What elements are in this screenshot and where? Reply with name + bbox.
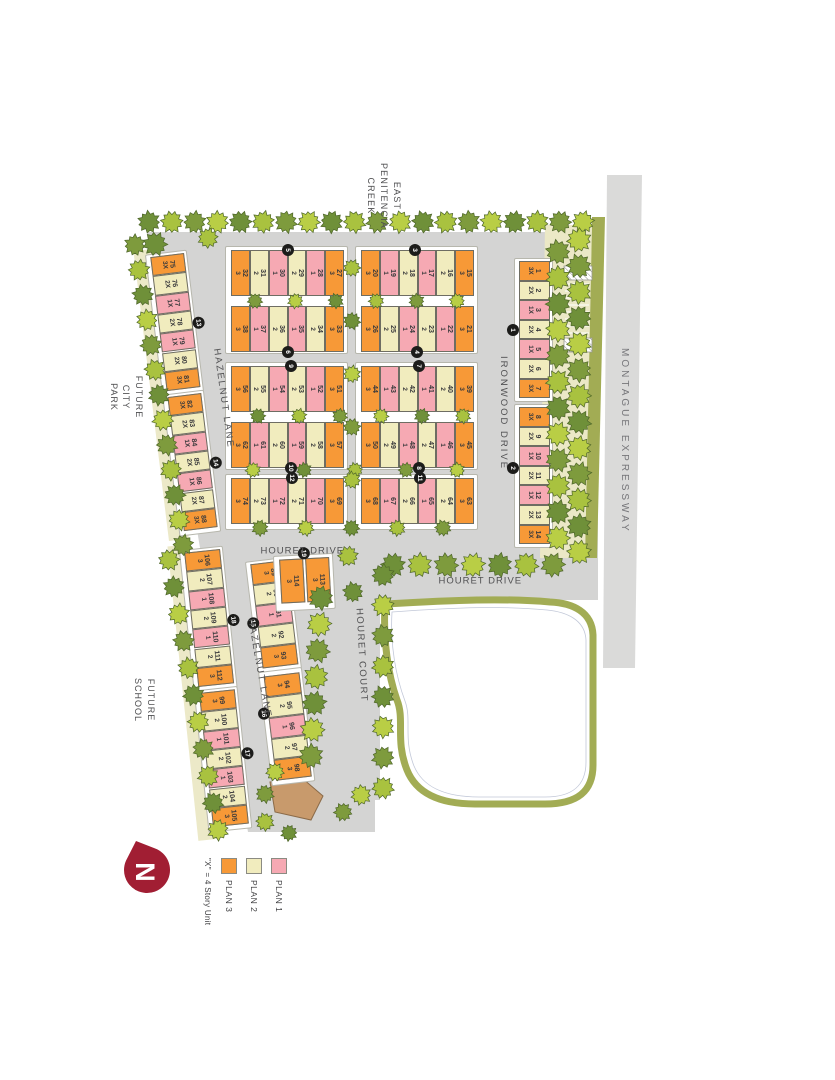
unit-lot: 143X bbox=[519, 525, 550, 545]
unit-lot: 83X bbox=[519, 407, 550, 427]
legend-label-plan-2: PLAN 2 bbox=[249, 880, 259, 912]
unit-number: 109 bbox=[209, 611, 217, 623]
unit-number: 100 bbox=[219, 713, 227, 725]
unit-lot: 743 bbox=[231, 478, 250, 524]
unit-lot: 693 bbox=[325, 478, 344, 524]
unit-number: 42 bbox=[408, 385, 415, 393]
unit-lot: 393 bbox=[455, 366, 474, 412]
unit-plan: 2 bbox=[290, 387, 297, 391]
unit-lot: 521 bbox=[306, 366, 325, 412]
unit-plan: 3 bbox=[234, 387, 241, 391]
unit-lot: 431 bbox=[380, 366, 399, 412]
unit-lot: 532 bbox=[288, 366, 307, 412]
unit-number: 47 bbox=[427, 441, 434, 449]
school-label-line: SCHOOL bbox=[132, 658, 145, 742]
unit-plan: 2 bbox=[382, 327, 389, 331]
unit-number: 18 bbox=[408, 269, 415, 277]
unit-plan: 2X bbox=[173, 356, 181, 365]
unit-lot: 642 bbox=[436, 478, 455, 524]
unit-plan: 3 bbox=[234, 327, 241, 331]
unit-number: 20 bbox=[371, 269, 378, 277]
unit-plan: 1 bbox=[252, 327, 259, 331]
unit-number: 33 bbox=[335, 325, 342, 333]
unit-lot: 22X bbox=[519, 281, 550, 301]
unit-plan: 3 bbox=[208, 674, 215, 678]
unit-plan: 1X bbox=[166, 299, 174, 308]
unit-plan: 3 bbox=[223, 814, 230, 818]
unit-number: 21 bbox=[465, 325, 472, 333]
unit-lot: 721 bbox=[269, 478, 288, 524]
unit-number: 43 bbox=[389, 385, 396, 393]
unit-plan: 2X bbox=[168, 318, 176, 327]
creek-label-line: EAST bbox=[390, 136, 403, 256]
legend-label-plan-1: PLAN 1 bbox=[274, 880, 284, 912]
unit-number: 93 bbox=[279, 651, 287, 660]
unit-plan: 3 bbox=[328, 499, 335, 503]
unit-plan: 2 bbox=[382, 443, 389, 447]
unit-lot: 481 bbox=[399, 422, 418, 468]
unit-number: 94 bbox=[282, 680, 290, 689]
unit-plan: 2X bbox=[528, 432, 535, 440]
unit-plan: 1 bbox=[420, 499, 427, 503]
unit-plan: 3 bbox=[364, 327, 371, 331]
unit-number: 103 bbox=[225, 771, 233, 783]
unit-lot: 292 bbox=[288, 250, 307, 296]
unit-number: 55 bbox=[259, 385, 266, 393]
unit-plan: 1 bbox=[290, 327, 297, 331]
unit-lot: 513 bbox=[325, 366, 344, 412]
legend-label-plan-3: PLAN 3 bbox=[224, 880, 234, 912]
unit-number: 78 bbox=[175, 317, 183, 326]
unit-number: 54 bbox=[278, 385, 285, 393]
trash-enclosure bbox=[564, 266, 592, 280]
unit-lot: 443 bbox=[361, 366, 380, 412]
unit-plan: 1 bbox=[219, 776, 226, 780]
building-badge: 1 bbox=[507, 324, 519, 336]
legend-row-plan-2: PLAN 2 bbox=[246, 858, 262, 925]
unit-plan: 3X bbox=[178, 401, 186, 410]
unit-lot: 13X bbox=[519, 261, 550, 281]
unit-lot: 422 bbox=[399, 366, 418, 412]
unit-lot: 312 bbox=[250, 250, 269, 296]
unit-plan: 2X bbox=[190, 496, 198, 505]
unit-number: 97 bbox=[290, 743, 298, 752]
unit-strip: 1133114319 bbox=[278, 556, 332, 607]
unit-lot: 252 bbox=[380, 306, 399, 352]
unit-lot: 281 bbox=[306, 250, 325, 296]
unit-plan: 2 bbox=[206, 655, 213, 659]
unit-plan: 1 bbox=[439, 443, 446, 447]
unit-plan: 2 bbox=[221, 795, 228, 799]
unit-number: 80 bbox=[180, 356, 188, 365]
unit-number: 9 bbox=[535, 434, 542, 438]
unit-number: 32 bbox=[241, 269, 248, 277]
unit-plan: 2X bbox=[185, 458, 193, 467]
unit-plan: 2 bbox=[202, 616, 209, 620]
unit-plan: 2 bbox=[401, 387, 408, 391]
unit-plan: 2 bbox=[290, 499, 297, 503]
unit-plan: 1X bbox=[528, 306, 535, 314]
unit-plan: 3 bbox=[328, 387, 335, 391]
unit-number: 84 bbox=[190, 438, 198, 447]
unit-lot: 582 bbox=[306, 422, 325, 468]
unit-number: 99 bbox=[217, 696, 225, 704]
unit-number: 108 bbox=[207, 592, 215, 604]
unit-number: 14 bbox=[535, 530, 542, 538]
unit-number: 8 bbox=[535, 415, 542, 419]
unit-number: 50 bbox=[371, 441, 378, 449]
unit-lot: 633 bbox=[455, 478, 474, 524]
legend-swatch-plan-1 bbox=[271, 858, 287, 874]
unit-plan: 1 bbox=[271, 271, 278, 275]
unit-number: 68 bbox=[371, 497, 378, 505]
unit-number: 75 bbox=[168, 260, 176, 269]
unit-number: 46 bbox=[446, 441, 453, 449]
unit-plan: 2 bbox=[198, 578, 205, 582]
building-badge: 11 bbox=[414, 472, 426, 484]
unit-lot: 1053 bbox=[211, 804, 249, 827]
unit-lot: 453 bbox=[455, 422, 474, 468]
unit-number: 38 bbox=[241, 325, 248, 333]
unit-number: 73 bbox=[259, 497, 266, 505]
north-arrow: N bbox=[97, 818, 192, 928]
unit-lot: 461 bbox=[436, 422, 455, 468]
unit-number: 15 bbox=[465, 269, 472, 277]
unit-number: 37 bbox=[259, 325, 266, 333]
unit-plan: 2 bbox=[252, 499, 259, 503]
legend-swatch-plan-3 bbox=[221, 858, 237, 874]
unit-lot: 732 bbox=[250, 478, 269, 524]
unit-plan: 2X bbox=[180, 420, 188, 429]
unit-plan: 2 bbox=[278, 704, 285, 708]
unit-number: 22 bbox=[446, 325, 453, 333]
unit-plan: 1X bbox=[170, 337, 178, 346]
unit-number: 40 bbox=[446, 385, 453, 393]
unit-lot: 983 bbox=[274, 756, 312, 781]
unit-number: 106 bbox=[202, 554, 210, 566]
unit-plan: 1 bbox=[267, 612, 274, 616]
unit-plan: 1 bbox=[204, 635, 211, 639]
street-label-ironwood-drive: IRONWOOD DRIVE bbox=[498, 356, 509, 470]
unit-number: 102 bbox=[223, 752, 231, 764]
unit-plan: 2 bbox=[420, 443, 427, 447]
unit-lot: 112X bbox=[519, 466, 550, 486]
unit-number: 79 bbox=[177, 337, 185, 346]
unit-number: 74 bbox=[241, 497, 248, 505]
unit-plan: 3 bbox=[364, 271, 371, 275]
unit-plan: 1 bbox=[309, 387, 316, 391]
unit-number: 86 bbox=[194, 476, 202, 485]
unit-number: 6 bbox=[535, 367, 542, 371]
unit-number: 26 bbox=[371, 325, 378, 333]
unit-plan: 1 bbox=[252, 443, 259, 447]
unit-number: 56 bbox=[241, 385, 248, 393]
unit-number: 27 bbox=[335, 269, 342, 277]
unit-number: 72 bbox=[278, 497, 285, 505]
unit-number: 10 bbox=[535, 452, 542, 460]
unit-plan: 1X bbox=[528, 452, 535, 460]
unit-lot: 552 bbox=[250, 366, 269, 412]
unit-plan: 3 bbox=[196, 559, 203, 563]
unit-number: 28 bbox=[316, 269, 323, 277]
building-badge: 7 bbox=[413, 360, 425, 372]
unit-number: 44 bbox=[371, 385, 378, 393]
unit-plan: 3 bbox=[328, 327, 335, 331]
unit-plan: 2 bbox=[265, 592, 272, 596]
north-arrow-letter: N bbox=[130, 862, 160, 882]
unit-plan: 2 bbox=[213, 718, 220, 722]
unit-number: 30 bbox=[278, 269, 285, 277]
unit-number: 87 bbox=[197, 496, 205, 505]
unit-number: 114 bbox=[292, 575, 300, 587]
building-badge: 6 bbox=[282, 346, 294, 358]
unit-number: 34 bbox=[316, 325, 323, 333]
unit-lot: 813X bbox=[164, 368, 200, 391]
unit-number: 57 bbox=[335, 441, 342, 449]
unit-number: 61 bbox=[259, 441, 266, 449]
unit-lot: 273 bbox=[325, 250, 344, 296]
unit-plan: 3 bbox=[364, 387, 371, 391]
unit-lot: 933 bbox=[260, 643, 298, 668]
unit-plan: 3 bbox=[328, 271, 335, 275]
unit-number: 2 bbox=[535, 288, 542, 292]
building-badge: 3 bbox=[409, 244, 421, 256]
unit-plan: 1X bbox=[187, 477, 195, 486]
unit-lot: 712 bbox=[288, 478, 307, 524]
unit-number: 23 bbox=[427, 325, 434, 333]
unit-number: 65 bbox=[427, 497, 434, 505]
unit-plan: 3 bbox=[272, 654, 279, 658]
park-label-line: FUTURE bbox=[133, 352, 146, 442]
unit-plan: 3 bbox=[276, 683, 283, 687]
unit-lot: 883X bbox=[182, 508, 218, 531]
unit-plan: 3 bbox=[328, 443, 335, 447]
unit-plan: 3X bbox=[528, 413, 535, 421]
unit-plan: 3 bbox=[311, 578, 318, 582]
houret-court-landscape-island bbox=[385, 600, 593, 804]
unit-plan: 3 bbox=[364, 499, 371, 503]
unit-plan: 3 bbox=[458, 327, 465, 331]
unit-number: 11 bbox=[535, 472, 542, 479]
unit-plan: 1 bbox=[401, 443, 408, 447]
unit-lot: 1133 bbox=[305, 557, 331, 602]
unit-plan: 1X bbox=[528, 345, 535, 353]
unit-lot: 492 bbox=[380, 422, 399, 468]
unit-number: 92 bbox=[276, 630, 284, 639]
unit-plan: 3 bbox=[458, 271, 465, 275]
unit-number: 52 bbox=[316, 385, 323, 393]
unit-number: 82 bbox=[185, 400, 193, 409]
unit-plan: 2 bbox=[271, 443, 278, 447]
unit-number: 113 bbox=[318, 574, 326, 586]
unit-plan: 1 bbox=[271, 499, 278, 503]
unit-lot: 333 bbox=[325, 306, 344, 352]
unit-plan: 2 bbox=[439, 387, 446, 391]
unit-plan: 3 bbox=[458, 499, 465, 503]
area-label-future-city-park: FUTURE CITY PARK bbox=[108, 352, 146, 442]
unit-lot: 671 bbox=[380, 478, 399, 524]
unit-lot: 342 bbox=[306, 306, 325, 352]
unit-plan: 2 bbox=[252, 271, 259, 275]
unit-lot: 1123 bbox=[196, 664, 234, 687]
unit-number: 105 bbox=[229, 809, 237, 821]
unit-plan: 2X bbox=[163, 280, 171, 289]
unit-number: 104 bbox=[227, 790, 235, 802]
unit-lot: 51X bbox=[519, 339, 550, 359]
street-label-houret-drive-east: HOURET DRIVE bbox=[439, 576, 517, 587]
unit-plan: 1 bbox=[382, 271, 389, 275]
creek-label-line: PENITENCIA bbox=[377, 136, 390, 256]
unit-lot: 182 bbox=[399, 250, 418, 296]
unit-number: 49 bbox=[389, 441, 396, 449]
unit-lot: 42X bbox=[519, 320, 550, 340]
street-label-montague-expressway: MONTAGUE EXPRESSWAY bbox=[619, 348, 630, 534]
unit-lot: 383 bbox=[231, 306, 250, 352]
unit-plan: 3 bbox=[458, 387, 465, 391]
unit-number: 1 bbox=[535, 269, 542, 273]
unit-number: 88 bbox=[199, 515, 207, 524]
unit-plan: 2 bbox=[420, 327, 427, 331]
unit-number: 71 bbox=[297, 497, 304, 505]
unit-lot: 411 bbox=[418, 366, 437, 412]
unit-plan: 1 bbox=[309, 271, 316, 275]
unit-number: 66 bbox=[408, 497, 415, 505]
unit-number: 107 bbox=[205, 573, 213, 585]
legend-row-plan-1: PLAN 1 bbox=[271, 858, 287, 925]
unit-plan: 1 bbox=[309, 499, 316, 503]
unit-lot: 62X bbox=[519, 359, 550, 379]
unit-number: 17 bbox=[427, 269, 434, 277]
building-badge: 4 bbox=[411, 346, 423, 358]
unit-number: 16 bbox=[446, 269, 453, 277]
creek-label: EAST PENITENCIA CREEK bbox=[364, 136, 403, 256]
unit-number: 69 bbox=[335, 497, 342, 505]
unit-lot: 371 bbox=[250, 306, 269, 352]
legend: PLAN 1 PLAN 2 PLAN 3 "X" = 4 Story Unit bbox=[203, 858, 287, 925]
unit-number: 7 bbox=[535, 386, 542, 390]
unit-number: 24 bbox=[408, 325, 415, 333]
unit-number: 12 bbox=[535, 491, 542, 499]
creek-label-line: CREEK bbox=[364, 136, 377, 256]
unit-plan: 1X bbox=[183, 439, 191, 448]
unit-lot: 301 bbox=[269, 250, 288, 296]
unit-number: 70 bbox=[316, 497, 323, 505]
unit-number: 110 bbox=[211, 631, 219, 643]
unit-lot: 602 bbox=[269, 422, 288, 468]
unit-number: 5 bbox=[535, 347, 542, 351]
unit-plan: 1 bbox=[281, 725, 288, 729]
unit-number: 101 bbox=[221, 733, 229, 745]
unit-number: 85 bbox=[192, 457, 200, 466]
unit-plan: 3 bbox=[286, 766, 293, 770]
unit-lot: 701 bbox=[306, 478, 325, 524]
unit-plan: 2 bbox=[290, 271, 297, 275]
unit-number: 95 bbox=[285, 701, 293, 710]
unit-plan: 3X bbox=[192, 516, 200, 525]
unit-number: 3 bbox=[535, 308, 542, 312]
legend-note: "X" = 4 Story Unit bbox=[203, 858, 212, 925]
unit-number: 48 bbox=[408, 441, 415, 449]
unit-number: 19 bbox=[389, 269, 396, 277]
unit-plan: 3X bbox=[528, 384, 535, 392]
building-badge: 9 bbox=[285, 360, 297, 372]
unit-number: 111 bbox=[213, 650, 221, 662]
unit-number: 53 bbox=[297, 385, 304, 393]
unit-number: 4 bbox=[535, 328, 542, 332]
unit-lot: 503 bbox=[361, 422, 380, 468]
unit-number: 81 bbox=[182, 375, 190, 384]
unit-lot: 132X bbox=[519, 505, 550, 525]
legend-row-plan-3: PLAN 3 bbox=[221, 858, 237, 925]
unit-number: 41 bbox=[427, 385, 434, 393]
unit-plan: 1 bbox=[382, 387, 389, 391]
unit-lot: 162 bbox=[436, 250, 455, 296]
unit-plan: 1 bbox=[439, 327, 446, 331]
unit-lot: 351 bbox=[288, 306, 307, 352]
site-plan-page: EAST PENITENCIA CREEK MONTAGUE EXPRESSWA… bbox=[0, 0, 835, 1080]
unit-plan: 1 bbox=[382, 499, 389, 503]
unit-lot: 232 bbox=[418, 306, 437, 352]
building-badge: 12 bbox=[286, 472, 298, 484]
unit-plan: 2 bbox=[270, 633, 277, 637]
unit-number: 83 bbox=[187, 419, 195, 428]
unit-number: 59 bbox=[297, 441, 304, 449]
unit-plan: 2X bbox=[528, 511, 535, 519]
unit-lot: 683 bbox=[361, 478, 380, 524]
unit-plan: 1 bbox=[215, 737, 222, 741]
unit-number: 96 bbox=[287, 722, 295, 731]
unit-plan: 1 bbox=[401, 327, 408, 331]
legend-swatch-plan-2 bbox=[246, 858, 262, 874]
unit-lot: 263 bbox=[361, 306, 380, 352]
unit-plan: 3 bbox=[234, 271, 241, 275]
unit-plan: 2 bbox=[217, 756, 224, 760]
unit-number: 25 bbox=[389, 325, 396, 333]
unit-plan: 3 bbox=[458, 443, 465, 447]
unit-lot: 31X bbox=[519, 300, 550, 320]
unit-lot: 153 bbox=[455, 250, 474, 296]
unit-number: 35 bbox=[297, 325, 304, 333]
unit-number: 98 bbox=[292, 763, 300, 772]
unit-plan: 2 bbox=[439, 271, 446, 275]
unit-plan: 3 bbox=[211, 699, 218, 703]
unit-number: 62 bbox=[241, 441, 248, 449]
unit-plan: 1 bbox=[271, 387, 278, 391]
unit-lot: 402 bbox=[436, 366, 455, 412]
unit-number: 112 bbox=[215, 669, 223, 681]
unit-plan: 2 bbox=[439, 499, 446, 503]
unit-lot: 101X bbox=[519, 446, 550, 466]
unit-plan: 2X bbox=[528, 365, 535, 373]
unit-number: 58 bbox=[316, 441, 323, 449]
unit-lot: 221 bbox=[436, 306, 455, 352]
unit-number: 39 bbox=[465, 385, 472, 393]
trash-enclosure bbox=[564, 338, 592, 352]
unit-lot: 662 bbox=[399, 478, 418, 524]
unit-plan: 3 bbox=[364, 443, 371, 447]
unit-lot: 541 bbox=[269, 366, 288, 412]
unit-lot: 472 bbox=[418, 422, 437, 468]
unit-number: 13 bbox=[535, 511, 542, 519]
unit-plan: 2 bbox=[271, 327, 278, 331]
unit-lot: 573 bbox=[325, 422, 344, 468]
unit-lot: 213 bbox=[455, 306, 474, 352]
unit-plan: 2 bbox=[309, 327, 316, 331]
building-badge: 2 bbox=[507, 462, 519, 474]
unit-plan: 1 bbox=[200, 597, 207, 601]
unit-plan: 1 bbox=[290, 443, 297, 447]
unit-lot: 121X bbox=[519, 485, 550, 505]
